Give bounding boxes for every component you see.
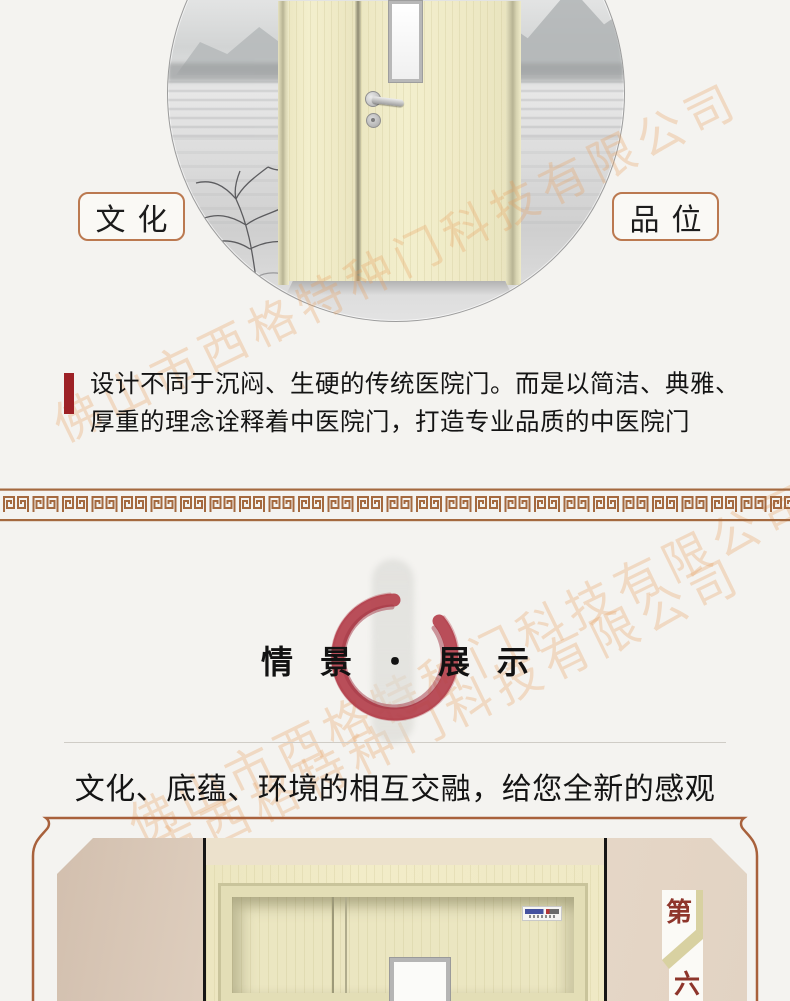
door-leaf-narrow [289,1,356,281]
door-trim-outer [218,883,588,1001]
portal-edge-right [604,838,607,1001]
intro-line-1: 设计不同于沉闷、生硬的传统医院门。而是以简洁、典雅、 [90,366,750,404]
door-vision-window [389,1,422,82]
ribbon-bookmark: 第 六 [660,890,710,1001]
door-frame-left [278,1,289,285]
door-leaf-main [361,1,506,281]
door-sign [522,906,562,921]
accent-red-bar [64,373,74,414]
showcase-photo: 第 六 [57,838,747,1001]
door-circle-photo [167,0,625,322]
intro-paragraph: 设计不同于沉闷、生硬的传统医院门。而是以简洁、典雅、 厚重的理念诠释着中医院门，… [90,366,750,442]
promo-page: 佛山市西格特种门科技有限公司 佛山市西格特种门科技有限公司 佛山市西格特种门科技… [0,0,790,1001]
portal-lintel [206,838,604,865]
door-frame-right [506,1,521,285]
badge-bottom-char: 六 [674,970,700,999]
door-trim-inner [221,886,585,1001]
leaf-seam-line [345,897,347,993]
taste-label: 品位 [612,192,719,241]
door-floor-shadow [286,281,512,295]
hero-door-photo [278,1,521,297]
door-vision-window [390,958,450,1001]
badge-top-char: 第 [666,897,692,927]
door-sign-logo [525,909,559,914]
section-subtitle: 文化、底蕴、环境的相互交融，给您全新的感观 [0,764,790,808]
door-portal [206,838,604,1001]
door-recess [232,897,574,993]
culture-label: 文化 [78,192,185,241]
door-sign-subtext [529,915,555,918]
intro-line-2: 厚重的理念诠释着中医院门，打造专业品质的中医院门 [90,404,750,442]
divider-line [64,742,726,743]
meander-border [0,488,790,522]
leaf-seam-line [332,897,334,993]
section-title: 情景・展示 [0,637,790,683]
portal-wood-panel [206,865,604,1001]
door-lock-cylinder [366,113,381,128]
